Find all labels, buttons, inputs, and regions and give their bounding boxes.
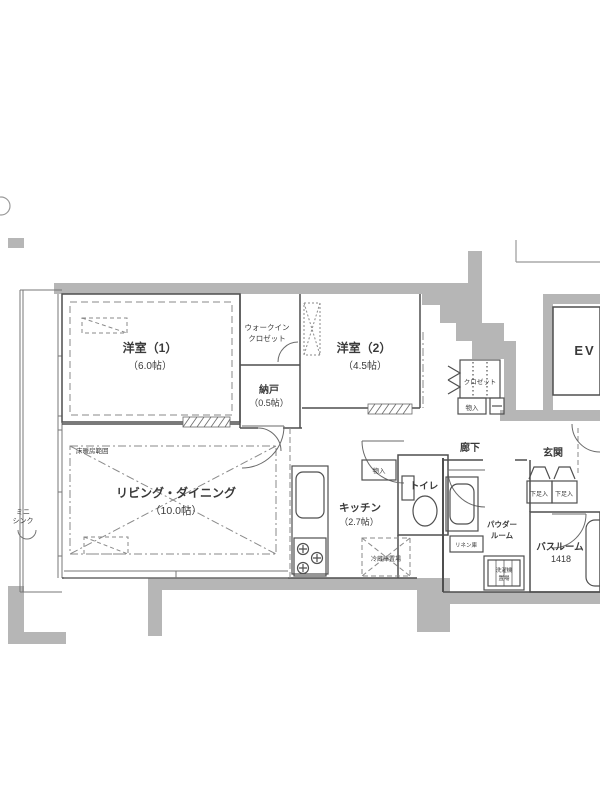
room2-size: （4.5帖） [343,359,387,372]
bath-label: バスルーム [536,541,584,553]
nando-door [258,428,281,451]
hallway-label: 廊下 [460,441,480,454]
mini-sink-bowl [18,530,36,539]
closet-label: クロゼット [464,377,497,386]
storage-room2-label: 物入 [466,403,480,412]
living-door [242,426,284,468]
storage-hall-label: 物入 [373,466,387,475]
wic-label-2: クロゼット [248,333,286,343]
kitchen-sink [296,472,324,518]
shoe-right-label: 下足入 [555,491,573,498]
living-size: （10.0帖） [150,504,202,517]
room1-outline [62,294,240,422]
entrance-label: 玄関 [543,446,563,459]
room1-size: （6.0帖） [128,359,172,372]
outer-walls [8,238,600,644]
living-label: リビング・ダイニング [116,485,236,500]
entrance-door [572,424,600,452]
washer-label-2: 置場 [498,574,510,582]
washer-label-1: 洗濯機 [496,566,513,574]
floor-heating-label: 床暖房範囲 [76,446,109,455]
floor-plan-svg: ミニ シンク EV [0,0,600,800]
balcony [18,290,62,592]
stove [294,538,326,576]
mini-sink-label-2: シンク [13,517,34,525]
toilet-label: トイレ [410,481,439,492]
linen-label: リネン庫 [455,541,478,549]
room1-ceiling-dash [70,302,232,415]
wic-label-1: ウォークイン [245,323,290,332]
floor-plan-page: ミニ シンク EV [0,0,600,800]
living-window [64,571,288,578]
powder-door [448,470,485,507]
kitchen-fixtures [292,466,328,576]
kitchen-size: （2.7帖） [339,516,379,527]
shoe-left-label: 下足入 [530,491,548,498]
fridge-label: 冷蔵庫置場 [371,555,401,563]
wic-door [278,342,298,362]
kitchen-label: キッチン [339,502,381,514]
neighbor-unit-lines [516,240,600,262]
bathtub [586,520,600,586]
toilet-bowl [413,496,437,526]
room1-label: 洋室（1） [123,340,178,355]
powder-label-1: パウダー [487,519,517,529]
room2-label: 洋室（2） [337,340,392,355]
nando-size: （0.5帖） [249,397,289,408]
closet-door-fold [448,366,460,380]
room-outlines [62,294,600,592]
mini-sink-label-1: ミニ [16,509,30,516]
edge-circle-mark [0,197,10,215]
nando-label: 納戸 [259,383,279,396]
elevator-label: EV [574,343,595,358]
bath-size: 1418 [551,554,571,564]
powder-label-2: ルーム [491,531,514,540]
toilet-outline [398,455,448,535]
